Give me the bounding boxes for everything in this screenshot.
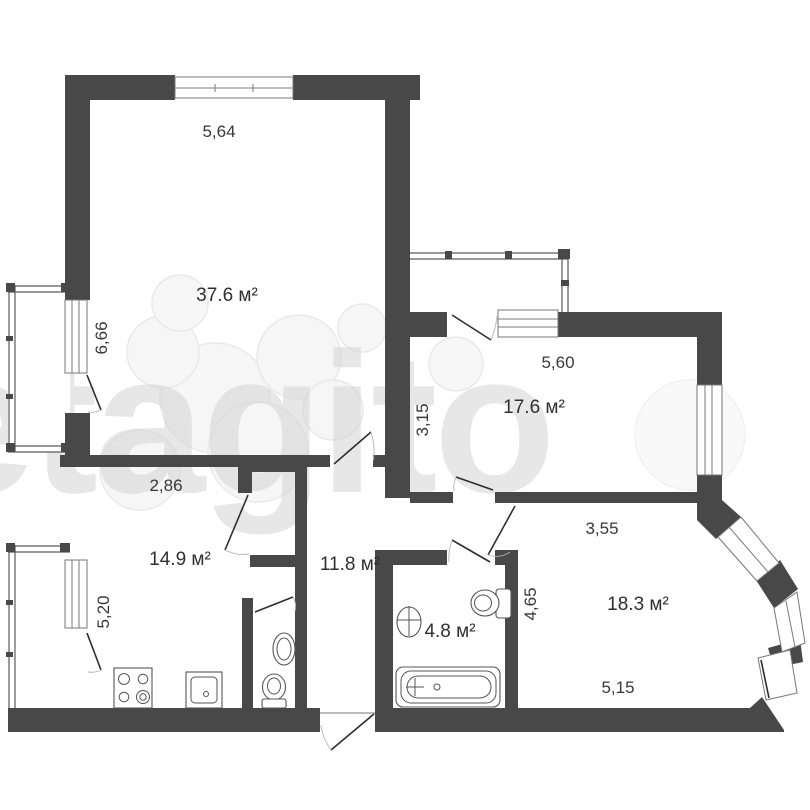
wall xyxy=(250,555,307,567)
wall xyxy=(295,463,307,567)
label-dim-bedroom2-left: 4,65 xyxy=(521,587,540,620)
wall xyxy=(373,455,385,467)
bath-toilet-bowl xyxy=(471,590,499,616)
door-leaf xyxy=(87,633,101,670)
wall xyxy=(505,550,518,708)
floor-plan-svg: etagito xyxy=(0,0,810,810)
wall xyxy=(60,455,250,467)
wall xyxy=(65,413,90,457)
wall xyxy=(295,567,307,708)
wall xyxy=(8,708,320,732)
door-arc xyxy=(88,670,101,672)
label-dim-bedroom2-bottom: 5,15 xyxy=(601,678,634,697)
glazing-post xyxy=(6,283,15,292)
label-dim-bedroom-left: 3,15 xyxy=(413,403,432,436)
glazing-post xyxy=(60,543,70,552)
wall xyxy=(410,312,447,337)
label-area-bedroom2: 18.3 м² xyxy=(607,594,669,615)
wall xyxy=(697,337,722,385)
window xyxy=(65,300,87,373)
label-area-living: 37.6 м² xyxy=(196,285,258,306)
glazing-tick xyxy=(6,600,13,605)
fixtures xyxy=(114,589,511,708)
door-leaf xyxy=(255,597,293,612)
wall xyxy=(410,492,453,503)
door-leaf xyxy=(452,540,490,562)
glazing-post xyxy=(6,543,15,552)
glazing-tick xyxy=(445,251,452,259)
wall xyxy=(558,312,722,337)
label-dim-kitchen-top: 2,86 xyxy=(149,476,182,495)
window xyxy=(498,310,558,337)
glazing-tick xyxy=(6,652,13,657)
glazing-tick xyxy=(561,280,569,286)
label-area-hall: 11.8 м² xyxy=(320,554,380,575)
wall xyxy=(750,697,784,732)
wall xyxy=(307,455,330,467)
floor-plan: etagito xyxy=(0,0,810,810)
door-arc xyxy=(225,550,249,555)
label-dim-living-top: 5,64 xyxy=(202,122,235,141)
window xyxy=(65,560,87,628)
wall xyxy=(495,492,697,503)
glazing-tick xyxy=(6,394,13,399)
label-dim-kitchen-left: 5,20 xyxy=(94,595,113,628)
label-dim-living-left: 6,66 xyxy=(92,321,111,354)
label-dim-bedroom-top: 5,60 xyxy=(541,353,574,372)
window xyxy=(697,385,722,475)
wall xyxy=(375,708,752,732)
watermark-circle xyxy=(635,380,745,490)
glazing-post xyxy=(6,443,15,452)
glazing-tick xyxy=(6,336,13,341)
wall xyxy=(375,550,447,565)
wc-toilet-tank xyxy=(262,699,286,708)
stove xyxy=(114,668,152,708)
label-area-bathroom: 4.8 м² xyxy=(424,621,475,642)
wall xyxy=(385,77,410,498)
wall xyxy=(65,75,90,300)
balcony-floor xyxy=(8,285,70,452)
label-dim-bedroom2-top: 3,55 xyxy=(585,519,618,538)
balcony-floor xyxy=(8,545,70,708)
wall xyxy=(242,598,253,708)
label-area-kitchen: 14.9 м² xyxy=(149,549,211,570)
glazing-tick xyxy=(505,251,512,259)
door-arc xyxy=(449,540,452,562)
wall xyxy=(238,467,252,493)
label-area-bedroom: 17.6 м² xyxy=(503,397,565,418)
glazing-post xyxy=(558,249,570,259)
